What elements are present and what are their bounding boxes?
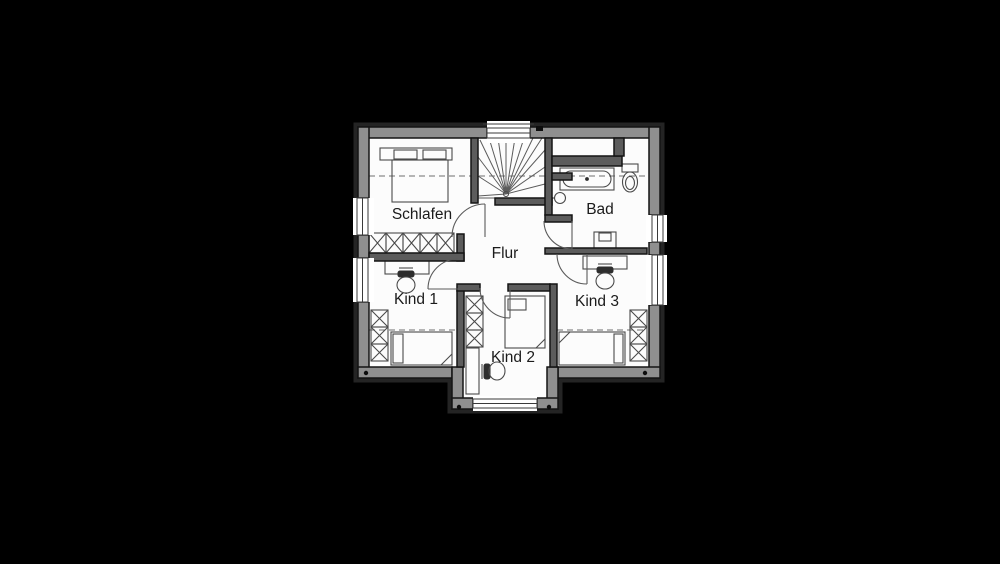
window: [353, 198, 374, 235]
room-label-kind1: Kind 1: [394, 291, 438, 308]
room-label-kind2: Kind 2: [491, 349, 535, 366]
window: [473, 396, 537, 411]
room-label-flur: Flur: [492, 245, 519, 262]
window: [483, 121, 534, 143]
window: [646, 255, 667, 305]
floor-plan-canvas: Schlafen Bad Flur Kind 1 Kind 2 Kind 3: [0, 0, 1000, 564]
window: [353, 258, 374, 302]
room-label-kind3: Kind 3: [575, 293, 619, 310]
window: [646, 215, 667, 242]
floor-plan-drawing: Schlafen Bad Flur Kind 1 Kind 2 Kind 3: [0, 0, 1000, 564]
room-label-schlafen: Schlafen: [392, 206, 452, 223]
room-label-bad: Bad: [586, 201, 614, 218]
